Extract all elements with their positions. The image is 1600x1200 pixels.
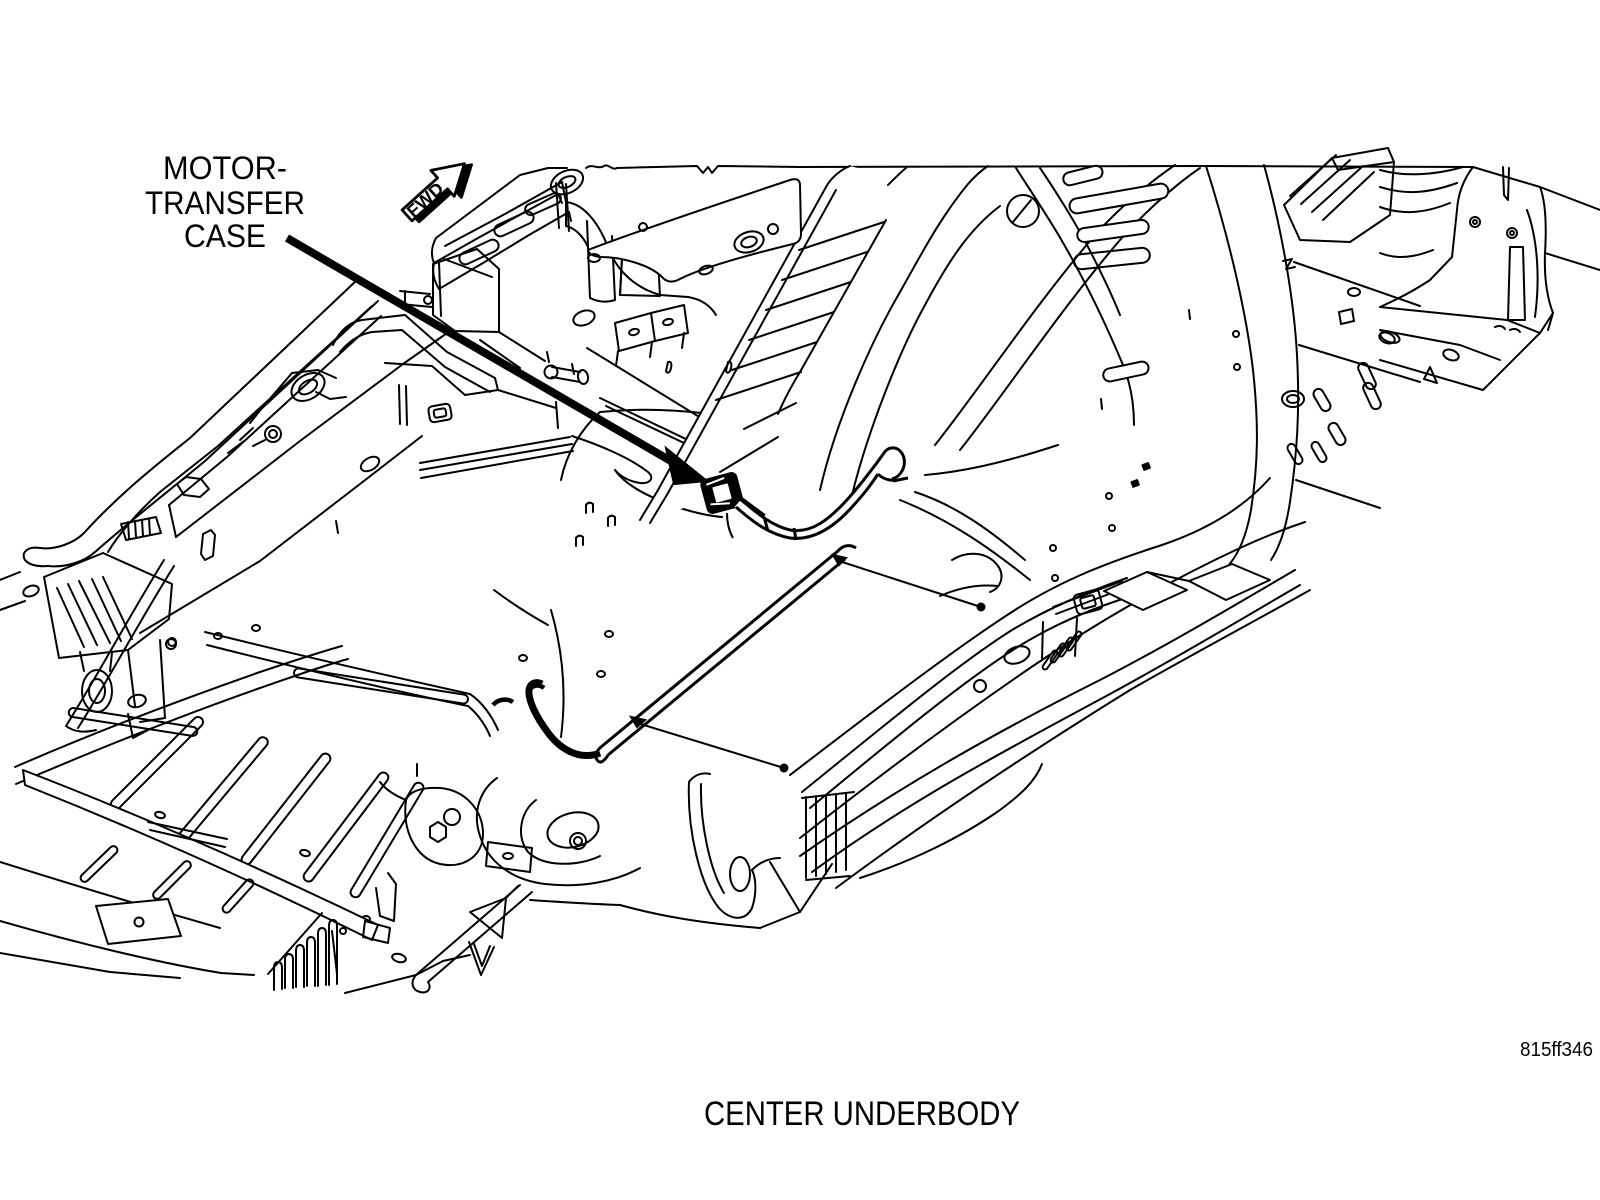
svg-text:TRANSFER: TRANSFER [145,185,305,221]
svg-text:MOTOR-: MOTOR- [163,150,287,186]
svg-text:CASE: CASE [184,218,266,254]
svg-text:815ff346: 815ff346 [1520,1039,1593,1061]
svg-text:CENTER UNDERBODY: CENTER UNDERBODY [704,1095,1020,1133]
